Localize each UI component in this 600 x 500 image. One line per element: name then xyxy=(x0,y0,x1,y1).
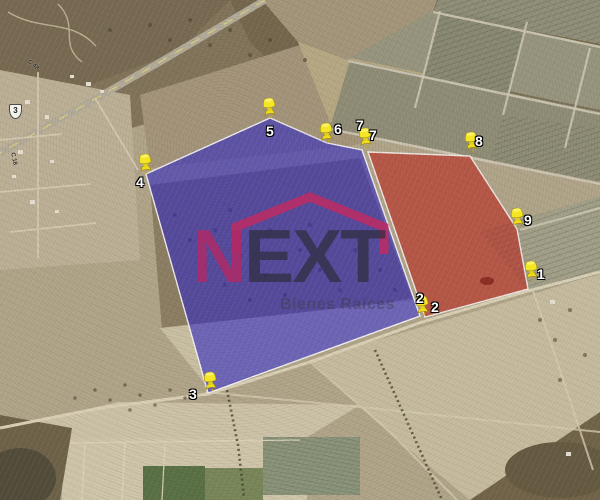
pin-label-5: 5 xyxy=(266,124,274,138)
pin-label-4: 4 xyxy=(136,175,144,189)
satellite-map[interactable]: NEXT Bienes Raíces 12234567789 3 C 48 C … xyxy=(0,0,600,500)
pin-label-3: 3 xyxy=(189,387,197,401)
pin-label-2: 2 xyxy=(431,300,439,314)
pin-label-8: 8 xyxy=(475,134,483,148)
satellite-imagery xyxy=(0,0,600,500)
pin-label-9: 9 xyxy=(524,213,532,227)
pin-label-7: 7 xyxy=(369,128,377,142)
pin-label-2: 2 xyxy=(416,291,424,305)
pin-label-1: 1 xyxy=(537,267,545,281)
pin-label-7: 7 xyxy=(356,118,364,132)
pin-label-6: 6 xyxy=(334,122,342,136)
